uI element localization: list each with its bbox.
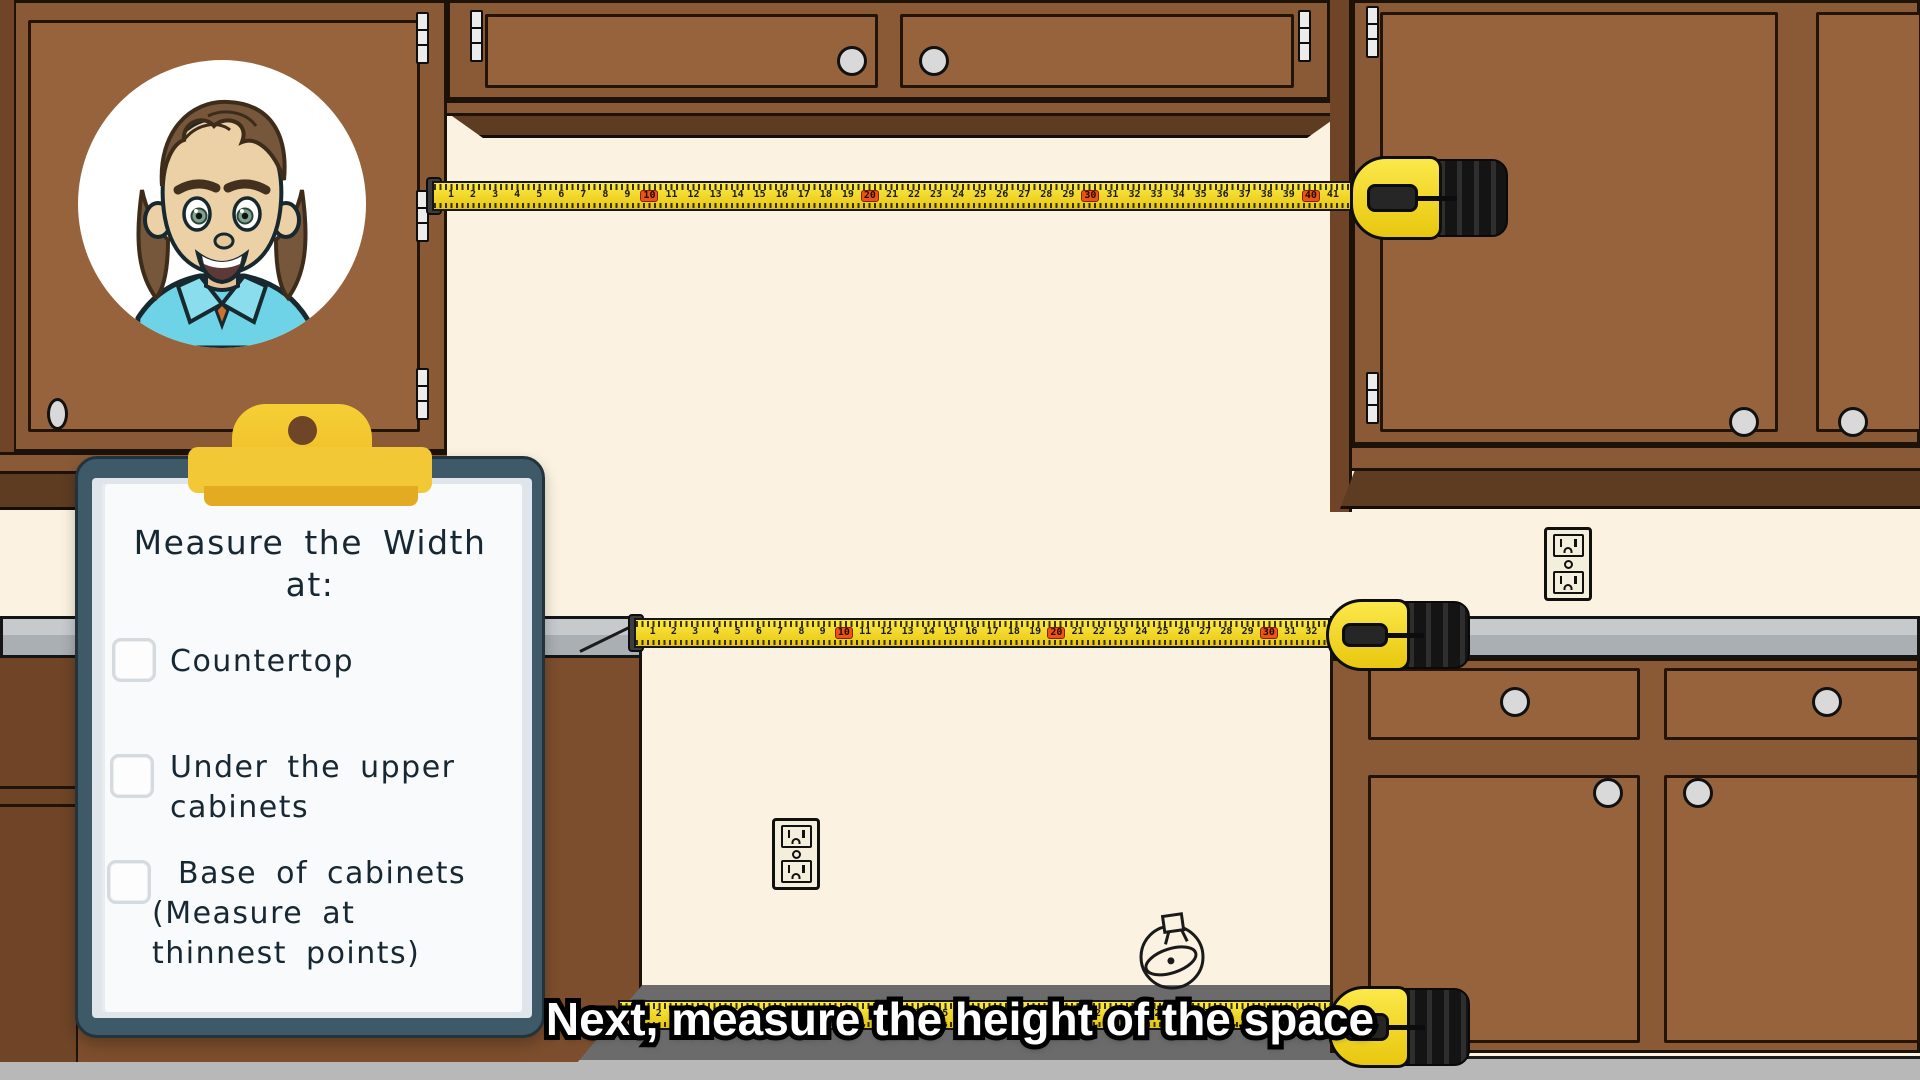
hinge-icon (1298, 10, 1311, 62)
tape-number: 1 (440, 190, 462, 202)
tape-number: 14 (727, 190, 749, 202)
checklist-item-countertop: Countertop (170, 642, 500, 682)
clipboard: Measure the Width at: Countertop Under t… (75, 456, 545, 1038)
tape-number: 30 (1079, 190, 1101, 202)
tape-number: 16 (961, 627, 982, 639)
presenter-avatar (78, 60, 366, 348)
tape-number: 22 (903, 190, 925, 202)
checkbox-under-upper-cabinets[interactable] (110, 754, 154, 798)
outlet-screw (1564, 560, 1573, 569)
tape-number: 36 (1212, 190, 1234, 202)
tape-case-lock (1367, 184, 1418, 213)
checklist-item-line: Countertop (170, 642, 500, 682)
tape-number: 23 (925, 190, 947, 202)
tape-number: 3 (685, 627, 706, 639)
upper-center-cabinet-molding (447, 100, 1330, 116)
tape-case-pin (1386, 633, 1423, 637)
checklist-item-base-of-cabinets: Base of cabinets (Measure at thinnest po… (152, 854, 512, 974)
tape-number: 28 (1035, 190, 1057, 202)
tape-number: 4 (506, 190, 528, 202)
tape-number: 15 (749, 190, 771, 202)
tape-number: 29 (1237, 627, 1258, 639)
subtitle-caption-text: Next, measure the height of the space (32, 992, 1888, 1046)
tape-number: 16 (771, 190, 793, 202)
checklist-item-line: cabinets (170, 788, 510, 828)
tape-number: 13 (897, 627, 918, 639)
checkbox-base-of-cabinets[interactable] (107, 860, 151, 904)
tape-number: 39 (1278, 190, 1300, 202)
power-outlet-icon (772, 818, 820, 890)
checklist-item-line: Under the upper (170, 748, 510, 788)
tape-number: 17 (982, 627, 1003, 639)
tape-number: 30 (1258, 627, 1279, 639)
hinge-icon (416, 368, 429, 420)
hinge-icon (1366, 372, 1379, 424)
tape-number: 1 (642, 627, 663, 639)
upper-right-cabinet-stile (1330, 0, 1352, 512)
tape-number: 37 (1234, 190, 1256, 202)
tape-number: 17 (793, 190, 815, 202)
tape-number: 21 (881, 190, 903, 202)
tape-number: 32 (1301, 627, 1322, 639)
base-left-drawer-line (0, 804, 78, 807)
tape-number: 7 (770, 627, 791, 639)
tape-number: 6 (748, 627, 769, 639)
tape-number: 33 (1146, 190, 1168, 202)
tape-number: 5 (528, 190, 550, 202)
upper-left-cabinet-side (0, 0, 16, 452)
tape-number: 23 (1110, 627, 1131, 639)
tape-number: 5 (727, 627, 748, 639)
upper-center-cabinet-door-right (900, 14, 1294, 88)
checklist-title-line1: Measure the Width (110, 522, 510, 564)
outlet-socket (781, 860, 812, 883)
outlet-socket (1553, 571, 1584, 594)
clipboard-clip-hole (288, 416, 317, 445)
base-right-door-knob-left (1593, 778, 1623, 808)
clipboard-clip-lip (204, 486, 418, 506)
tape-number: 27 (1013, 190, 1035, 202)
base-left-drawer-line (0, 786, 78, 789)
measuring-tape-top: 1234567891011121314151617181920212223242… (432, 181, 1352, 211)
upper-left-cabinet-knob (47, 398, 68, 430)
tape-number: 25 (969, 190, 991, 202)
hinge-icon (416, 12, 429, 64)
tape-number: 22 (1088, 627, 1109, 639)
upper-right-cabinet-knob-right (1838, 407, 1868, 437)
tape-number: 34 (1168, 190, 1190, 202)
tape-number: 20 (859, 190, 881, 202)
tape-number: 21 (1067, 627, 1088, 639)
sink-drain-icon (1128, 910, 1212, 994)
tape-number: 26 (991, 190, 1013, 202)
measuring-tape-middle: 1234567891011121314151617181920212223242… (634, 618, 1330, 648)
tape-case-lock (1342, 623, 1388, 647)
tape-number: 11 (855, 627, 876, 639)
tape-number: 9 (812, 627, 833, 639)
base-right-drawer-right (1664, 668, 1920, 740)
upper-center-cabinet-underside (452, 116, 1338, 138)
tape-number: 6 (550, 190, 572, 202)
tape-number: 24 (947, 190, 969, 202)
tape-number: 41 (1322, 190, 1344, 202)
tape-number: 31 (1280, 627, 1301, 639)
base-right-drawer-knob-left (1500, 687, 1530, 717)
tape-number: 10 (638, 190, 660, 202)
tape-number: 8 (791, 627, 812, 639)
upper-right-cabinet-door-right (1816, 12, 1920, 432)
outlet-screw (792, 850, 801, 859)
checkbox-countertop[interactable] (112, 638, 156, 682)
tape-number: 12 (876, 627, 897, 639)
checklist-item-line: thinnest points) (152, 934, 512, 974)
tape-number: 20 (1046, 627, 1067, 639)
checklist-item-line: Base of cabinets (152, 854, 512, 894)
subtitle-caption: Next, measure the height of the space Ne… (32, 992, 1888, 1056)
hinge-icon (470, 10, 483, 62)
tape-number: 32 (1123, 190, 1145, 202)
tape-number: 9 (616, 190, 638, 202)
base-right-drawer-knob-right (1812, 687, 1842, 717)
upper-center-cabinet-door-left (485, 14, 878, 88)
tape-number: 24 (1131, 627, 1152, 639)
tape-number: 27 (1195, 627, 1216, 639)
outlet-socket (1553, 534, 1584, 557)
tape-number: 19 (837, 190, 859, 202)
tape-number: 35 (1190, 190, 1212, 202)
tape-number: 2 (462, 190, 484, 202)
tape-number: 25 (1152, 627, 1173, 639)
power-outlet-icon (1544, 527, 1592, 601)
tape-measure-case (1350, 156, 1508, 240)
tape-number: 29 (1057, 190, 1079, 202)
tape-number: 7 (572, 190, 594, 202)
checklist-title-line2: at: (110, 564, 510, 606)
tape-number: 8 (594, 190, 616, 202)
upper-right-cabinet-knob-left (1729, 407, 1759, 437)
avatar-illustration (78, 60, 366, 348)
tape-measure-case (1326, 599, 1470, 671)
upper-center-cabinet-knob-left (837, 46, 867, 76)
upper-center-cabinet-knob-right (919, 46, 949, 76)
tape-number: 3 (484, 190, 506, 202)
tape-case-pin (1416, 196, 1457, 201)
tape-number: 40 (1300, 190, 1322, 202)
kitchen-scene: 1234567891011121314151617181920212223242… (0, 0, 1920, 1080)
tape-number: 13 (705, 190, 727, 202)
checklist-item-under-upper-cabinets: Under the upper cabinets (170, 748, 510, 828)
tape-number: 19 (1025, 627, 1046, 639)
base-right-door-knob-right (1683, 778, 1713, 808)
tape-number: 38 (1256, 190, 1278, 202)
outlet-socket (781, 825, 812, 848)
hinge-icon (1366, 6, 1379, 58)
tape-number: 4 (706, 627, 727, 639)
tape-number: 18 (815, 190, 837, 202)
tape-number: 11 (660, 190, 682, 202)
tape-number: 10 (833, 627, 854, 639)
upper-right-cabinet-molding (1352, 445, 1920, 471)
tape-number: 31 (1101, 190, 1123, 202)
tape-number: 28 (1216, 627, 1237, 639)
tape-number: 26 (1173, 627, 1194, 639)
tape-number: 12 (683, 190, 705, 202)
checklist-title: Measure the Width at: (110, 522, 510, 606)
tape-number: 15 (940, 627, 961, 639)
checklist-item-line: (Measure at (152, 894, 512, 934)
tape-number: 18 (1003, 627, 1024, 639)
upper-right-cabinet-underside (1340, 471, 1920, 509)
tape-number: 2 (663, 627, 684, 639)
tape-number: 14 (918, 627, 939, 639)
